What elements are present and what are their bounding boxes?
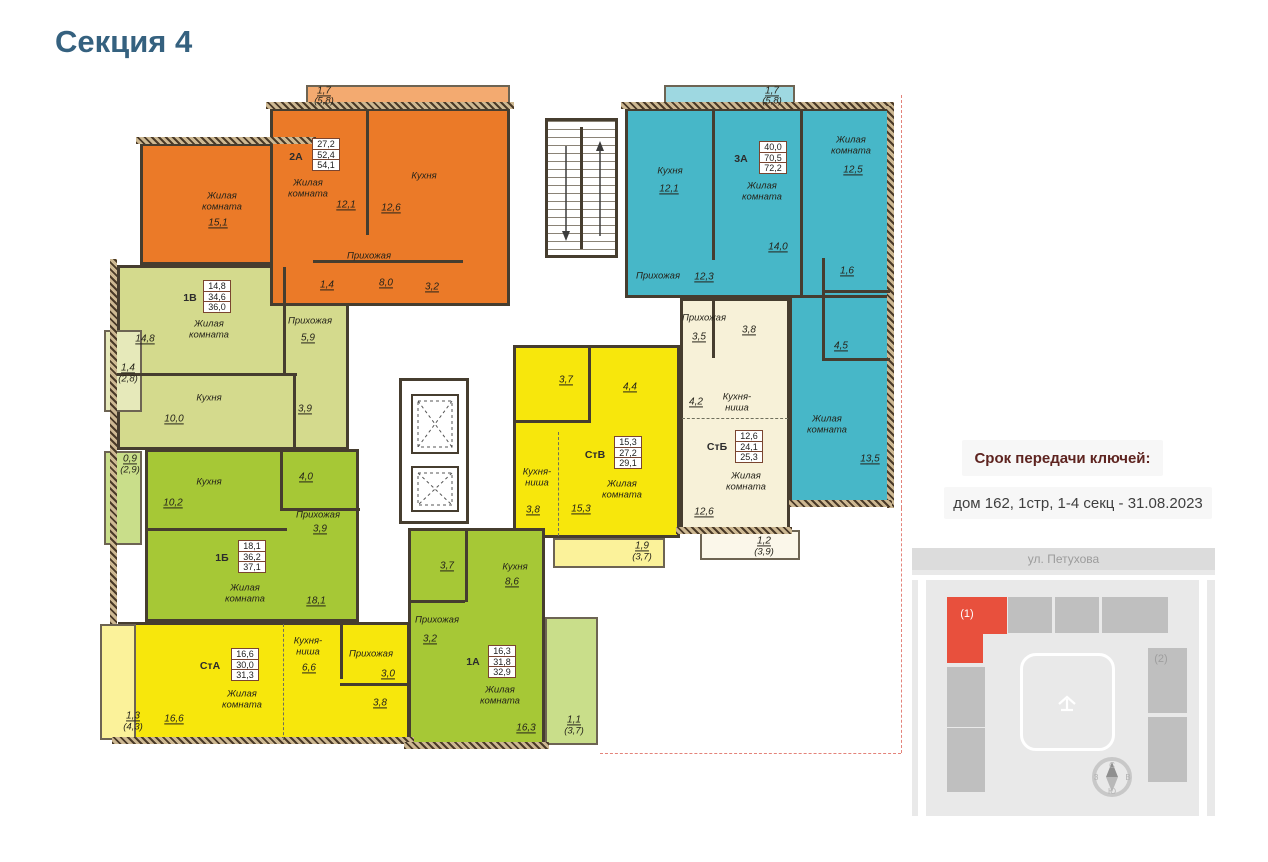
apartment-1v-stats-table: 14,834,636,0 [203, 281, 231, 313]
area-stat-cell: 31,3 [231, 669, 259, 681]
room-area-label: 12,6 [381, 202, 400, 213]
wall-segment [340, 683, 410, 686]
apartment-2a-label: 2А [289, 151, 302, 163]
room-name-label: Прихожая [288, 317, 332, 328]
keys-deadline-title-text: Срок передачи ключей: [974, 450, 1150, 467]
stairs-arrows-icon [548, 121, 621, 261]
hatched-wall [136, 137, 316, 144]
room-area-label: 6,6 [302, 662, 316, 673]
room-area-label: 1,1 [567, 714, 581, 725]
keys-deadline-title: Срок передачи ключей: [962, 440, 1163, 476]
minimap-section-1-block[interactable] [947, 597, 1007, 634]
hatched-wall [676, 527, 792, 534]
room-area-label: 12,6 [694, 506, 713, 517]
minimap-building-block [1055, 597, 1099, 633]
elevator-shafts [399, 378, 469, 524]
room-area-label: 1,3 [126, 710, 140, 721]
wall-segment [822, 358, 890, 361]
room-name-label: Кухня- ниша [723, 392, 751, 413]
room-name-label: Кухня [502, 563, 527, 574]
room-area-label: 12,1 [336, 199, 355, 210]
room-name-label: Прихожая [296, 511, 340, 522]
wall-segment [145, 528, 287, 531]
svg-text:З: З [1094, 773, 1099, 782]
room-area-label: 12,3 [694, 271, 713, 282]
room-name-label: Жилая комната [831, 135, 871, 156]
apartment-2a-stats-table: 27,252,454,1 [312, 139, 340, 171]
room-area-label: 12,5 [843, 164, 862, 175]
room-name-label: Прихожая [636, 272, 680, 283]
room-area-label: 16,6 [164, 713, 183, 724]
area-stat-cell: 54,1 [312, 159, 340, 171]
wall-segment [822, 258, 825, 361]
room-area-label: 1,2 [757, 535, 771, 546]
balcony-total-label: (3,7) [632, 553, 652, 564]
red-section-boundary [600, 753, 901, 754]
apartment-stv-label: СтВ [585, 449, 605, 461]
wall-segment [712, 300, 715, 358]
svg-text:Ю: Ю [1108, 787, 1116, 796]
road-strip-right [1199, 580, 1207, 821]
wall-segment [117, 373, 297, 376]
apartment-stb-label: СтБ [707, 441, 727, 453]
room-name-label: Жилая комната [480, 685, 520, 706]
balcony-total-label: (4,3) [123, 723, 143, 734]
room-name-label: Кухня- ниша [523, 467, 551, 488]
minimap-section-1-label: (1) [960, 608, 973, 620]
room-area-label: 4,5 [834, 340, 848, 351]
room-area-label: 4,0 [299, 471, 313, 482]
room-area-label: 14,0 [768, 241, 787, 252]
location-minimap: ул. Петухова (1) (2) С Ю З В [912, 548, 1215, 816]
balcony-total-label: (2,9) [120, 466, 140, 477]
area-stat-cell: 72,2 [759, 162, 787, 174]
balcony-total-label: (5,8) [314, 97, 334, 108]
room-name-label: Кухня [657, 167, 682, 178]
hatched-wall [110, 259, 117, 624]
room-area-label: 0,9 [123, 453, 137, 464]
area-stat-cell: 29,1 [614, 457, 642, 469]
keys-deadline-info-text: дом 162, 1стр, 1-4 секц - 31.08.2023 [953, 495, 1203, 512]
room-name-label: Жилая комната [726, 471, 766, 492]
wall-segment [513, 420, 591, 423]
room-area-label: 1,9 [635, 540, 649, 551]
hatched-wall [621, 102, 894, 109]
apartment-1v-label: 1В [183, 292, 196, 304]
elevator-cross-icon [402, 381, 472, 527]
red-section-boundary [901, 508, 902, 753]
wall-segment [588, 347, 591, 420]
room-name-label: Жилая комната [288, 178, 328, 199]
wall-segment [408, 600, 465, 603]
balcony-total-label: (5,8) [762, 97, 782, 108]
room-name-label: Прихожая [349, 650, 393, 661]
room-name-label: Жилая комната [807, 414, 847, 435]
wall-segment [366, 110, 369, 235]
apartment-3a-label: 3А [734, 153, 747, 165]
room-name-label: Прихожая [347, 252, 391, 263]
svg-text:С: С [1109, 761, 1115, 770]
apartment-1a-stats-table: 16,331,832,9 [488, 646, 516, 678]
room-area-label: 18,1 [306, 595, 325, 606]
room-name-label: Прихожая [682, 314, 726, 325]
wall-segment [712, 110, 715, 260]
balcony-total-label: (2,8) [118, 375, 138, 386]
dashed-partition-line [558, 432, 559, 536]
balcony-total-label: (3,9) [754, 548, 774, 559]
room-area-label: 1,6 [840, 265, 854, 276]
playground-icon [1058, 696, 1076, 714]
wall-segment [800, 110, 803, 295]
apartment-1b-label: 1Б [215, 552, 228, 564]
room-area-label: 3,0 [381, 668, 395, 679]
street-label: ул. Петухова [1028, 552, 1099, 566]
room-area-label: 3,7 [559, 374, 573, 385]
page: Секция 4 1В14,834,636 [0, 0, 1268, 862]
room-area-label: 3,9 [313, 523, 327, 534]
road-strip-left [918, 580, 926, 821]
room-name-label: Жилая комната [222, 689, 262, 710]
room-area-label: 3,7 [440, 560, 454, 571]
wall-segment [822, 290, 890, 293]
room-area-label: 3,2 [425, 281, 439, 292]
room-area-label: 4,2 [689, 396, 703, 407]
wall-segment [283, 267, 286, 373]
stairwell [545, 118, 618, 258]
apartment-3a-region[interactable] [789, 295, 890, 506]
room-area-label: 3,9 [298, 403, 312, 414]
room-name-label: Кухня- ниша [294, 636, 322, 657]
room-area-label: 13,5 [860, 453, 879, 464]
apartment-sta-label: СтА [200, 660, 220, 672]
apartment-1b-stats-table: 18,136,237,1 [238, 541, 266, 573]
wall-segment [293, 375, 296, 450]
wall-segment [340, 624, 343, 679]
compass-icon: С Ю З В [1091, 756, 1133, 798]
room-name-label: Кухня [196, 478, 221, 489]
room-area-label: 15,1 [208, 217, 227, 228]
room-area-label: 3,8 [373, 697, 387, 708]
minimap-building-block [1008, 597, 1052, 633]
apartment-sta-stats-table: 16,630,031,3 [231, 649, 259, 681]
apartment-stv-stats-table: 15,327,229,1 [614, 437, 642, 469]
room-area-label: 1,4 [121, 362, 135, 373]
minimap-building-block [947, 667, 985, 727]
room-area-label: 16,3 [516, 722, 535, 733]
dashed-partition-line [682, 418, 788, 419]
hatched-wall [887, 106, 894, 508]
minimap-body: (1) (2) С Ю З В [912, 575, 1215, 816]
wall-segment [280, 451, 283, 511]
apartment-3a-stats-table: 40,070,572,2 [759, 142, 787, 174]
room-name-label: Кухня [196, 394, 221, 405]
keys-deadline-info: дом 162, 1стр, 1-4 секц - 31.08.2023 [944, 487, 1212, 519]
room-area-label: 3,5 [692, 331, 706, 342]
red-section-boundary [901, 95, 902, 508]
room-area-label: 12,1 [659, 183, 678, 194]
street-label-bar: ул. Петухова [912, 548, 1215, 570]
room-name-label: Жилая комната [742, 181, 782, 202]
apartment-stb-balcony [700, 530, 800, 560]
hatched-wall [112, 737, 414, 744]
room-area-label: 1,4 [320, 279, 334, 290]
room-name-label: Жилая комната [202, 191, 242, 212]
room-name-label: Жилая комната [225, 583, 265, 604]
room-name-label: Жилая комната [602, 479, 642, 500]
dashed-partition-line [283, 624, 284, 740]
svg-text:В: В [1125, 773, 1130, 782]
apartment-stb-stats-table: 12,624,125,3 [735, 431, 763, 463]
wall-segment [465, 530, 468, 602]
area-stat-cell: 37,1 [238, 561, 266, 573]
apartment-sta-region[interactable] [118, 622, 410, 742]
room-area-label: 14,8 [135, 333, 154, 344]
minimap-section-1-block[interactable] [947, 634, 983, 663]
room-name-label: Жилая комната [189, 319, 229, 340]
room-name-label: Прихожая [415, 616, 459, 627]
hatched-wall [789, 500, 892, 507]
area-stat-cell: 25,3 [735, 451, 763, 463]
room-area-label: 15,3 [571, 503, 590, 514]
room-name-label: Кухня [411, 172, 436, 183]
minimap-building-block [1148, 717, 1187, 782]
room-area-label: 3,2 [423, 633, 437, 644]
area-stat-cell: 36,0 [203, 301, 231, 313]
area-stat-cell: 32,9 [488, 666, 516, 678]
minimap-section-2-label: (2) [1154, 653, 1167, 665]
room-area-label: 3,8 [742, 324, 756, 335]
room-area-label: 5,9 [301, 332, 315, 343]
minimap-building-block [1102, 597, 1168, 633]
hatched-wall [266, 102, 514, 109]
room-area-label: 8,6 [505, 576, 519, 587]
minimap-building-block [947, 728, 985, 792]
balcony-total-label: (3,7) [564, 727, 584, 738]
room-area-label: 3,8 [526, 504, 540, 515]
room-area-label: 8,0 [379, 277, 393, 288]
room-area-label: 10,0 [164, 413, 183, 424]
room-area-label: 4,4 [623, 381, 637, 392]
hatched-wall [404, 742, 549, 749]
room-area-label: 10,2 [163, 497, 182, 508]
apartment-1a-label: 1А [466, 656, 479, 668]
